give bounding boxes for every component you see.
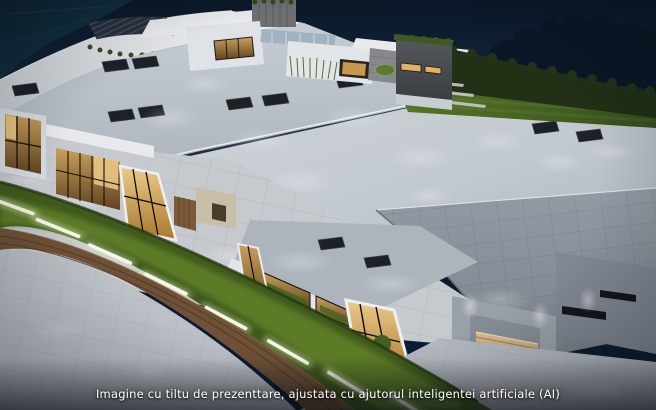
image-caption: Imagine cu tiltu de prezenttare, ajustat… (0, 387, 656, 401)
caption-fade (0, 358, 656, 410)
scene-graphic (0, 0, 656, 410)
rendered-image: Imagine cu tiltu de prezenttare, ajustat… (0, 0, 656, 410)
vignette (0, 0, 656, 410)
